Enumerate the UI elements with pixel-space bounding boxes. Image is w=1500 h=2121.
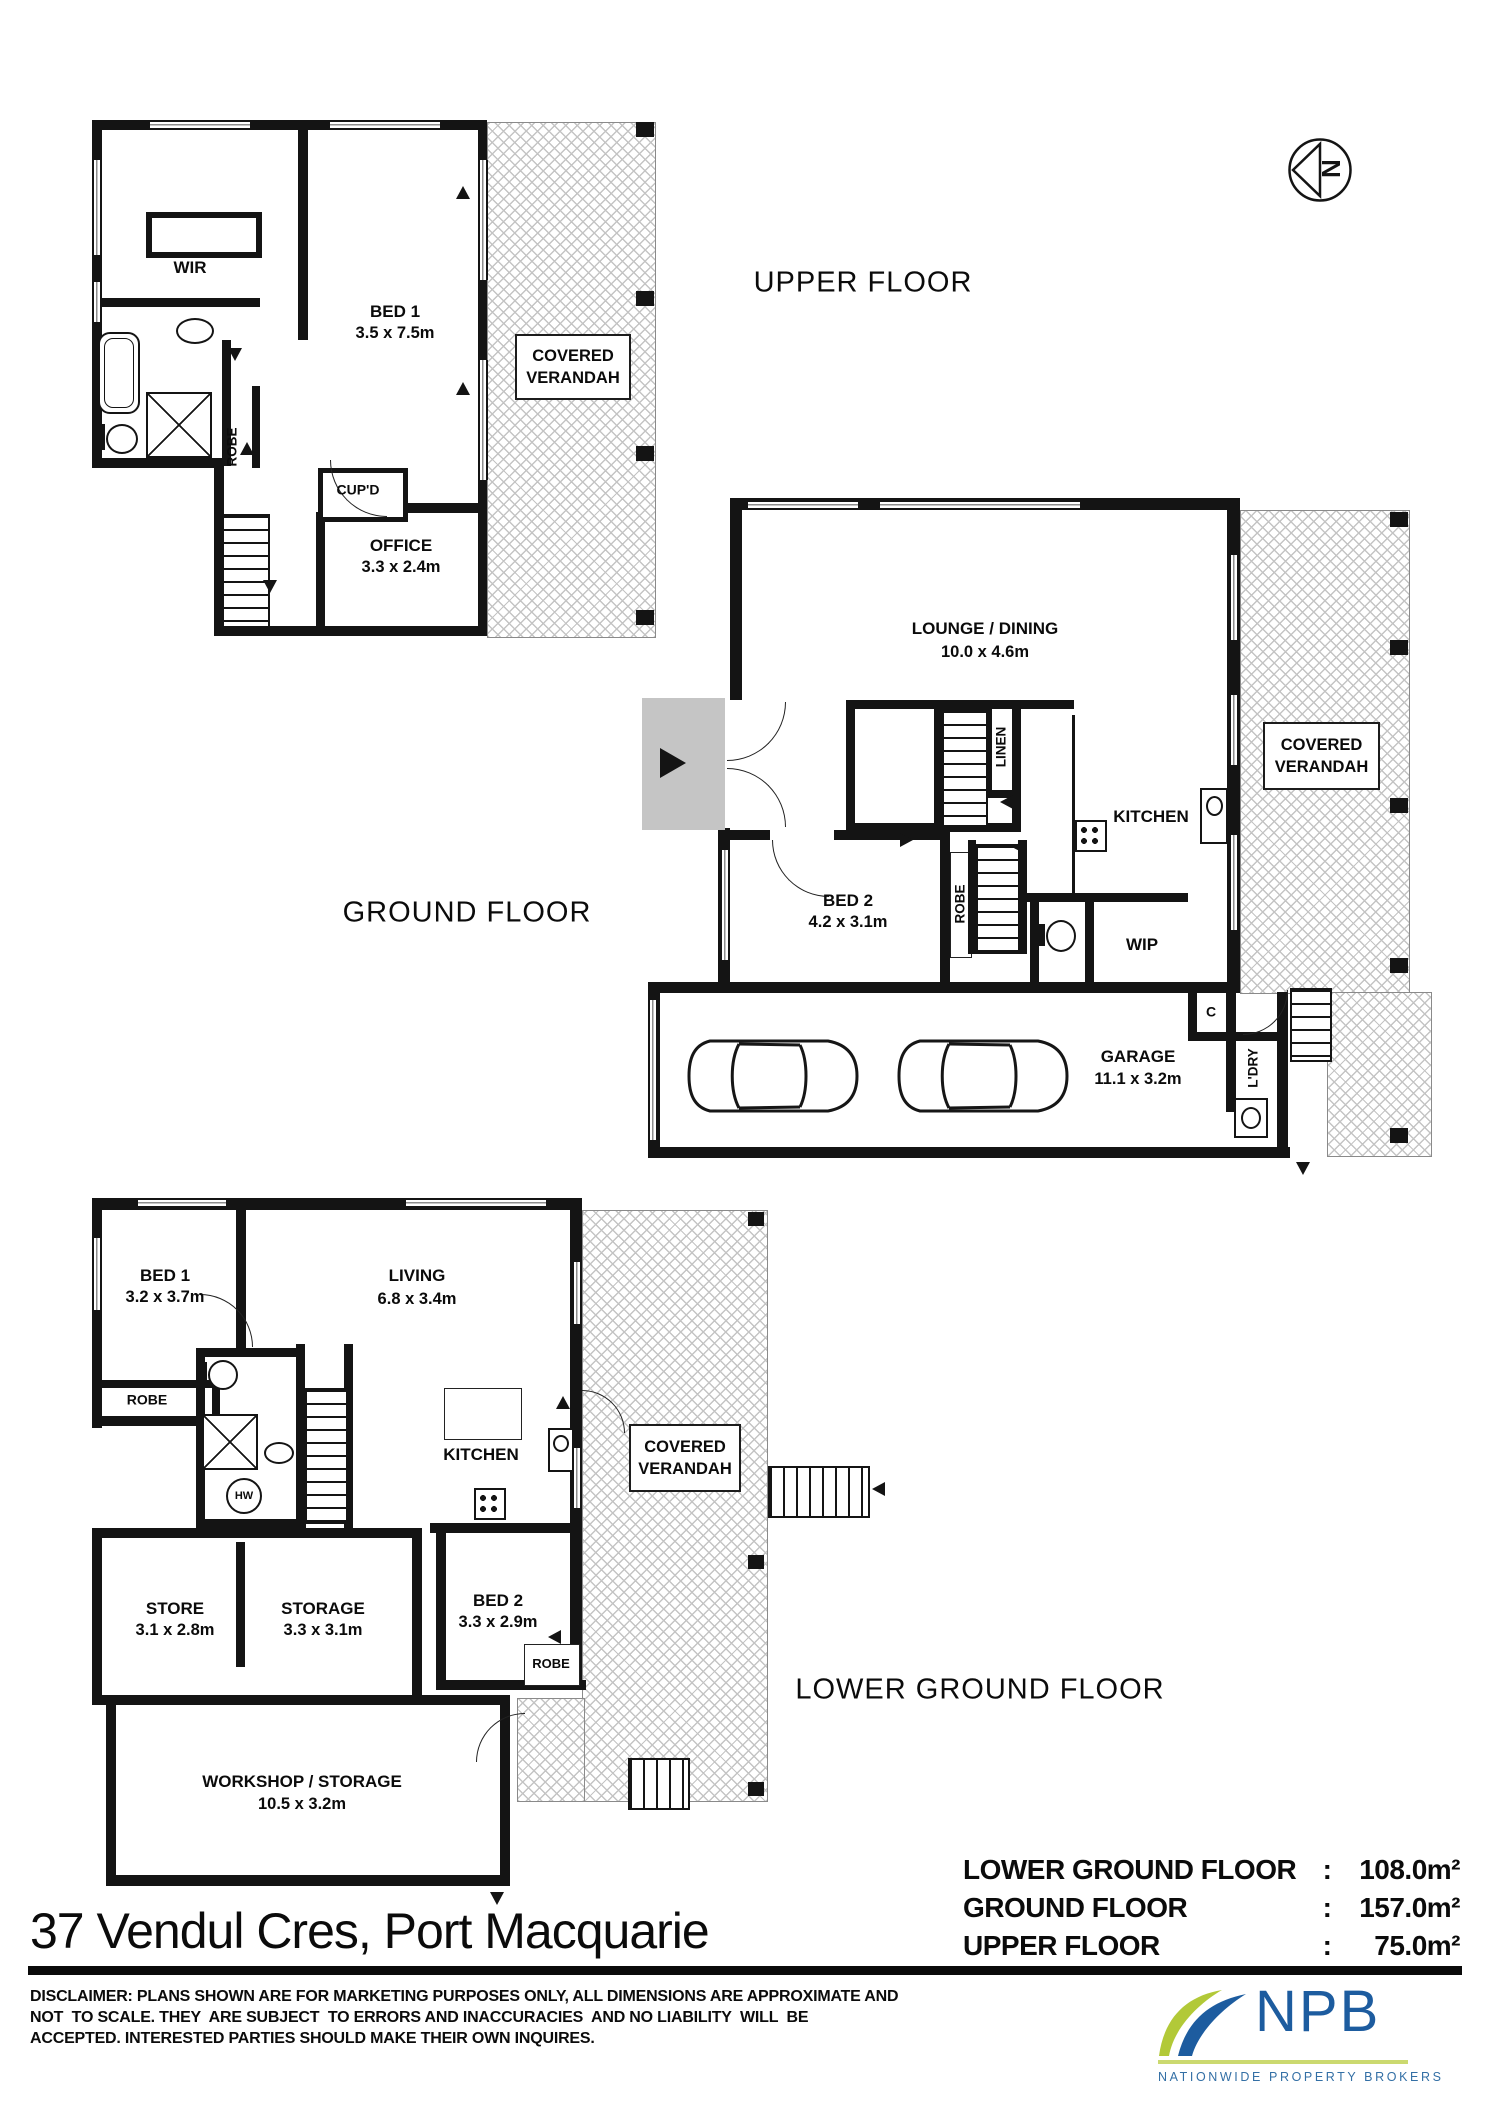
room-label-kitchen: KITCHEN	[1113, 807, 1189, 827]
room-label-cupboard: C	[1206, 1004, 1216, 1021]
verandah-label-line2: VERANDAH	[526, 367, 620, 389]
kitchen-sink-icon	[1200, 788, 1228, 844]
wall	[968, 840, 976, 954]
stairs	[768, 1466, 870, 1518]
arrow-up-icon	[456, 186, 470, 199]
wall	[92, 1528, 102, 1705]
area-row: LOWER GROUND FLOOR : 108.0m²	[963, 1851, 1460, 1889]
area-label: LOWER GROUND FLOOR	[963, 1851, 1314, 1889]
room-dims-lounge: 10.0 x 4.6m	[941, 643, 1029, 663]
verandah-post	[636, 122, 654, 137]
window	[478, 360, 488, 480]
car-icon	[892, 1036, 1074, 1116]
room-label-laundry: L'DRY	[1246, 1048, 1261, 1087]
window	[406, 1198, 546, 1208]
stairs	[305, 1388, 348, 1524]
wall	[1012, 700, 1021, 832]
stairs	[976, 844, 1022, 954]
room-dims-bed2: 3.3 x 2.9m	[459, 1613, 538, 1633]
npb-sails-icon	[1156, 1988, 1250, 2058]
wall	[1018, 893, 1188, 902]
laundry-tub-icon	[1234, 1098, 1268, 1138]
arrow-left-icon	[872, 1482, 885, 1496]
toilet-icon	[1046, 920, 1076, 952]
verandah-post	[748, 1555, 764, 1569]
area-row: GROUND FLOOR : 157.0m²	[963, 1889, 1460, 1927]
verandah-label-box: COVERED VERANDAH	[629, 1424, 741, 1492]
window	[330, 120, 440, 130]
stairs	[1290, 988, 1332, 1062]
wall	[196, 1348, 304, 1357]
window	[572, 1262, 582, 1324]
npb-underline	[1158, 2060, 1408, 2064]
arrow-up-icon	[556, 1396, 570, 1409]
verandah-post	[636, 446, 654, 461]
window	[748, 500, 858, 510]
verandah-label-box: COVERED VERANDAH	[1263, 722, 1380, 790]
area-value: 157.0m²	[1340, 1889, 1460, 1927]
verandah-post	[636, 610, 654, 625]
npb-tagline: NATIONWIDE PROPERTY BROKERS	[1158, 2070, 1444, 2084]
room-dims-storage: 3.3 x 3.1m	[284, 1621, 363, 1641]
window	[880, 500, 1080, 510]
window	[92, 160, 102, 255]
room-label-robe: ROBE	[127, 1392, 167, 1409]
door-gap	[770, 830, 834, 840]
wall	[718, 830, 950, 840]
wall	[648, 1147, 1290, 1158]
wall	[236, 1542, 245, 1667]
divider-rule	[28, 1966, 1462, 1975]
room-label-workshop: WORKSHOP / STORAGE	[202, 1772, 402, 1792]
stairs	[628, 1758, 690, 1810]
floor-title-lower: LOWER GROUND FLOOR	[795, 1674, 1164, 1707]
door-arc	[476, 1713, 525, 1762]
verandah-hatch	[517, 1698, 585, 1802]
vanity-sink-icon	[176, 318, 214, 344]
verandah-label-line1: COVERED	[532, 345, 614, 367]
room-label-robe: ROBE	[953, 884, 968, 923]
area-label: UPPER FLOOR	[963, 1927, 1314, 1965]
wall	[92, 1198, 102, 1428]
arrow-down-icon	[263, 580, 277, 593]
wall	[730, 498, 742, 700]
area-separator: :	[1314, 1851, 1340, 1889]
room-label-wip: WIP	[1126, 935, 1158, 955]
verandah-label-box: COVERED VERANDAH	[515, 334, 631, 400]
hot-water-label: HW	[235, 1490, 253, 1502]
window	[720, 850, 730, 960]
room-label-bed2: BED 2	[473, 1591, 523, 1611]
area-separator: :	[1314, 1927, 1340, 1965]
verandah-post	[1390, 640, 1408, 655]
wall	[316, 512, 325, 626]
compass-north-label: N	[1316, 159, 1346, 178]
wall	[92, 458, 224, 468]
door-arc	[727, 702, 786, 761]
room-dims-bed2: 4.2 x 3.1m	[809, 913, 888, 933]
wall	[106, 1705, 116, 1885]
room-label-bed1: BED 1	[140, 1266, 190, 1286]
room-label-storage: STORAGE	[281, 1599, 365, 1619]
arrow-right-icon	[900, 833, 913, 847]
stove-icon	[474, 1488, 506, 1520]
verandah-post	[748, 1782, 764, 1796]
arrow-left-icon	[1012, 840, 1025, 854]
verandah-label-line2: VERANDAH	[638, 1458, 732, 1480]
arrow-left-icon	[548, 1630, 561, 1644]
garage-door	[648, 1000, 658, 1140]
wall	[412, 1695, 510, 1705]
window	[92, 282, 102, 322]
wall	[106, 1875, 510, 1886]
floor-area-table: LOWER GROUND FLOOR : 108.0m² GROUND FLOO…	[963, 1851, 1460, 1965]
property-address: 37 Vendul Cres, Port Macquarie	[30, 1902, 709, 1960]
room-dims-living: 6.8 x 3.4m	[378, 1290, 457, 1310]
window	[1229, 555, 1239, 640]
floorplan-page: WIR BED 1 3.5 x 7.5m ROBE CUP'D OFFICE 3…	[0, 0, 1500, 2121]
toilet-icon	[106, 424, 138, 454]
wall	[430, 1523, 582, 1533]
room-label-bed2: BED 2	[823, 891, 873, 911]
window	[138, 1198, 226, 1208]
toilet-tank-icon	[200, 1362, 207, 1384]
verandah-label-line1: COVERED	[1281, 734, 1363, 756]
wall	[412, 1528, 422, 1705]
wall	[436, 1533, 446, 1690]
room-dims-workshop: 10.5 x 3.2m	[258, 1795, 346, 1815]
arrow-up-icon	[240, 442, 254, 455]
floor-title-ground: GROUND FLOOR	[343, 897, 592, 930]
room-label-store: STORE	[146, 1599, 204, 1619]
window	[1229, 695, 1239, 765]
room-label-wir: WIR	[173, 258, 206, 278]
room-dims-bed1: 3.2 x 3.7m	[126, 1288, 205, 1308]
basin-icon	[264, 1442, 294, 1464]
verandah-hatch	[582, 1210, 768, 1802]
room-label-lounge: LOUNGE / DINING	[912, 619, 1058, 639]
wir-island	[146, 212, 262, 258]
room-dims-store: 3.1 x 2.8m	[136, 1621, 215, 1641]
kitchen-bench	[1072, 715, 1075, 893]
floor-title-upper: UPPER FLOOR	[754, 267, 973, 300]
area-value: 75.0m²	[1340, 1927, 1460, 1965]
toilet-tank-icon	[98, 424, 105, 450]
window	[150, 120, 250, 130]
stairs	[942, 709, 988, 827]
room-label-office: OFFICE	[370, 536, 432, 556]
verandah-post	[636, 291, 654, 306]
verandah-post	[1390, 958, 1408, 973]
verandah-post	[1390, 798, 1408, 813]
window	[92, 1238, 102, 1310]
arrow-down-icon	[1296, 1162, 1310, 1175]
wall	[398, 503, 487, 513]
stove-icon	[1075, 820, 1107, 852]
shower-icon	[146, 392, 212, 458]
bathtub-icon	[98, 332, 140, 414]
verandah-hatch	[1327, 992, 1432, 1157]
door-arc	[727, 768, 786, 827]
shower-icon	[202, 1414, 258, 1470]
room-label-bed1: BED 1	[370, 302, 420, 322]
disclaimer-line1: DISCLAIMER: PLANS SHOWN ARE FOR MARKETIN…	[30, 1988, 898, 2006]
room-dims-garage: 11.1 x 3.2m	[1094, 1070, 1181, 1090]
room-label-garage: GARAGE	[1101, 1047, 1176, 1067]
window	[478, 160, 488, 280]
hot-water-icon: HW	[226, 1478, 262, 1514]
wall	[92, 298, 260, 307]
verandah-post	[748, 1212, 764, 1226]
arrow-down-icon	[228, 348, 242, 361]
verandah-post	[1390, 512, 1408, 527]
wall	[92, 1528, 422, 1538]
disclaimer-line2: NOT TO SCALE. THEY ARE SUBJECT TO ERRORS…	[30, 2009, 808, 2027]
room-label-robe2: ROBE	[532, 1656, 570, 1672]
room-label-living: LIVING	[389, 1266, 446, 1286]
wall	[1188, 1032, 1288, 1041]
area-label: GROUND FLOOR	[963, 1889, 1314, 1927]
wall	[92, 1695, 422, 1705]
arrow-up-icon	[456, 382, 470, 395]
wall	[196, 1519, 306, 1528]
room-dims-bed1: 3.5 x 7.5m	[356, 324, 435, 344]
room-label-linen: LINEN	[994, 727, 1009, 768]
room-dims-office: 3.3 x 2.4m	[362, 558, 441, 578]
door-arc	[772, 840, 829, 897]
stairs	[222, 514, 270, 628]
toilet-tank-icon	[1038, 924, 1045, 946]
wall	[940, 830, 950, 992]
wall	[934, 700, 942, 832]
arrow-left-icon	[1000, 795, 1013, 809]
kitchen-bench	[444, 1388, 522, 1440]
verandah-label-line2: VERANDAH	[1275, 756, 1369, 778]
area-row: UPPER FLOOR : 75.0m²	[963, 1927, 1460, 1965]
area-value: 108.0m²	[1340, 1851, 1460, 1889]
entry-arrow-icon	[660, 748, 686, 778]
compass-icon: N	[1287, 137, 1353, 203]
wall	[1085, 893, 1094, 992]
wall	[252, 386, 260, 468]
npb-initials: NPB	[1255, 1978, 1380, 2045]
room-label-kitchen: KITCHEN	[443, 1445, 519, 1465]
wall	[1012, 700, 1074, 709]
room-label-robe: ROBE	[225, 427, 240, 466]
wall	[846, 700, 855, 832]
car-icon	[682, 1036, 864, 1116]
kitchen-sink-icon	[548, 1428, 574, 1472]
verandah-post	[1390, 1128, 1408, 1143]
window	[1229, 835, 1239, 930]
npb-logo: NPB NATIONWIDE PROPERTY BROKERS	[1156, 1986, 1416, 2096]
wall	[296, 1344, 305, 1528]
toilet-icon	[208, 1360, 238, 1390]
verandah-label-line1: COVERED	[644, 1436, 726, 1458]
window	[572, 1448, 582, 1508]
room-label-cupd: CUP'D	[337, 482, 380, 499]
area-separator: :	[1314, 1889, 1340, 1927]
disclaimer-line3: ACCEPTED. INTERESTED PARTIES SHOULD MAKE…	[30, 2030, 595, 2048]
wall	[298, 128, 308, 340]
wall	[1226, 992, 1236, 1112]
